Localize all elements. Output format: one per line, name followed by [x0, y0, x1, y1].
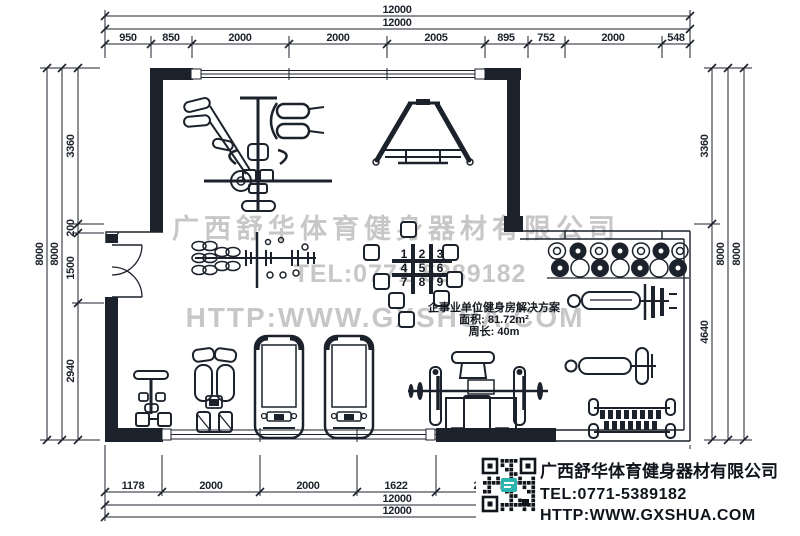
dim-right-total: 8000 [715, 242, 727, 265]
wall-bottom-left-corner [105, 428, 163, 442]
multi-station-machine [183, 97, 332, 212]
dim-bottom-seg: 2000 [199, 480, 222, 492]
bench-press [408, 352, 548, 435]
dim-bottom-total-inner: 12000 [382, 493, 411, 505]
elliptical-trainer [192, 348, 236, 432]
dim-top-total-outer: 12000 [382, 4, 411, 16]
wall-upper-left [150, 68, 163, 232]
dim-bottom-seg: 2000 [296, 480, 319, 492]
plate-rack [589, 399, 675, 438]
station-number: 3 [437, 247, 444, 261]
wall-lower-left [105, 297, 118, 442]
station-number: 2 [419, 247, 426, 261]
solution-title: 企事业单位健身房解决方案 [427, 300, 561, 314]
dim-top-seg: 2000 [228, 32, 251, 44]
dim-left-seg: 2940 [65, 359, 77, 382]
floor-plan-canvas: 广西舒华体育健身器材有限公司 TEL:0771-5389182 HTTP:WWW… [0, 0, 800, 536]
wall-upper-right [507, 80, 520, 232]
window-top [191, 68, 485, 80]
station-number: 5 [419, 261, 426, 275]
floor-plan-drawing: 广西舒华体育健身器材有限公司 TEL:0771-5389182 HTTP:WWW… [0, 0, 800, 536]
dim-left-total: 8000 [49, 242, 61, 265]
dim-bottom-seg: 1178 [122, 480, 145, 492]
dim-right-seg: 4640 [699, 320, 711, 343]
info-box: 广西舒华体育健身器材有限公司 TEL:0771-5389182 HTTP:WWW… [476, 449, 800, 536]
info-website: HTTP:WWW.GXSHUA.COM [540, 507, 756, 524]
dim-left-total: 8000 [34, 242, 46, 265]
qr-center-logo [501, 478, 517, 492]
spin-bike [134, 371, 171, 426]
wall-upper-right-foot [504, 216, 523, 232]
dim-top-seg: 895 [497, 32, 515, 44]
dim-right-total: 8000 [731, 242, 743, 265]
dim-top-seg: 850 [162, 32, 180, 44]
dim-left-seg: 1500 [65, 256, 77, 279]
treadmill-1 [255, 336, 303, 438]
station-number: 4 [401, 261, 408, 275]
dim-bottom-total-outer: 12000 [382, 505, 411, 517]
info-tel: TEL:0771-5389182 [540, 486, 687, 503]
dim-top-seg: 950 [119, 32, 137, 44]
left-dimension-labels: 8000 8000 3360 200 1500 2940 [34, 134, 77, 382]
wall-door-jamb [106, 234, 118, 243]
dim-top-seg: 548 [667, 32, 685, 44]
dim-top-seg: 2000 [326, 32, 349, 44]
solution-area: 面积: 81.72m² [459, 312, 529, 326]
flat-bench-2 [566, 348, 657, 384]
dim-top-seg: 2000 [601, 32, 624, 44]
dim-top-seg: 2005 [424, 32, 447, 44]
dim-top-seg: 752 [537, 32, 555, 44]
info-company: 广西舒华体育健身器材有限公司 [540, 461, 778, 481]
dumbbell-rack [547, 243, 689, 279]
station-number: 8 [419, 275, 426, 289]
incline-trainer [373, 99, 473, 165]
walls [105, 68, 556, 442]
station-number: 7 [401, 275, 408, 289]
dim-right-seg: 3360 [699, 134, 711, 157]
dim-left-seg: 3360 [65, 134, 77, 157]
double-door [112, 245, 142, 297]
station-number: 6 [437, 261, 444, 275]
treadmill-2 [325, 336, 373, 438]
top-dimension-labels: 12000 12000 950 850 2000 2000 2005 895 7… [119, 4, 685, 44]
station-number: 1 [401, 247, 408, 261]
station-number: 9 [437, 275, 444, 289]
right-dimension-labels: 3360 4640 8000 8000 [699, 134, 743, 343]
wall-top-left-corner [150, 68, 193, 80]
solution-perimeter: 周长: 40m [469, 324, 520, 338]
bottom-dimension-labels: 1178 2000 2000 1622 2000 12000 12000 [122, 480, 497, 517]
dim-top-total-inner: 12000 [382, 17, 411, 29]
dim-left-seg: 200 [65, 219, 77, 237]
dim-bottom-seg: 1622 [384, 480, 407, 492]
wall-top-right-corner [484, 68, 521, 80]
